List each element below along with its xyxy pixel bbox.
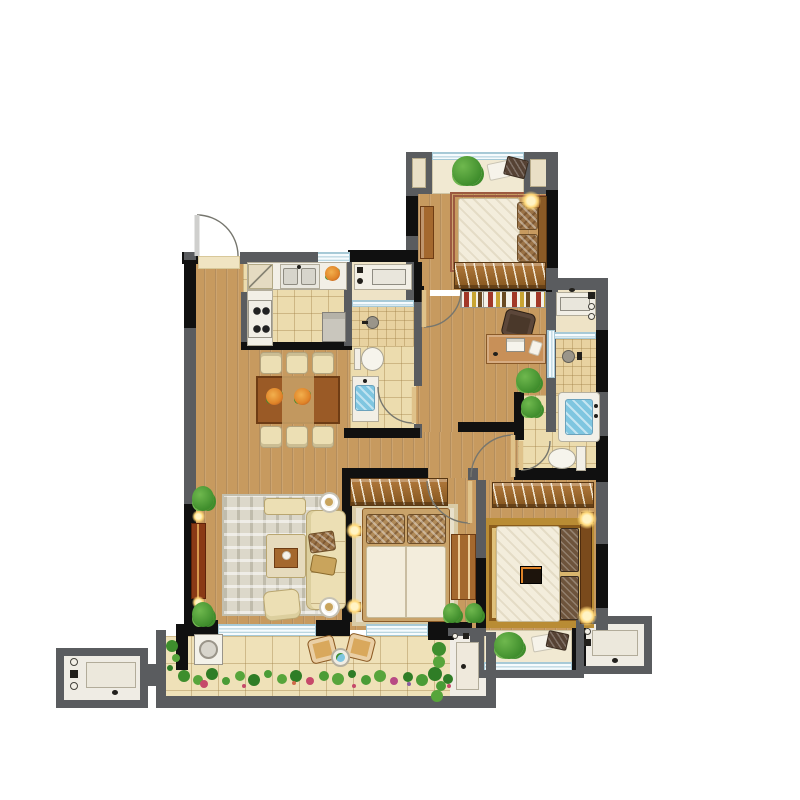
wall-segment xyxy=(546,190,558,268)
tray-dish xyxy=(282,551,291,560)
flower-bed-hedge xyxy=(178,670,190,682)
wall-segment xyxy=(414,262,422,302)
platform-fixture xyxy=(584,639,591,646)
wall-segment xyxy=(56,648,148,656)
plant xyxy=(192,486,214,511)
floor-plan xyxy=(0,0,800,800)
plant xyxy=(465,603,483,623)
shower-arm-icon xyxy=(362,321,368,324)
plant xyxy=(443,603,461,623)
shower-head-icon xyxy=(562,350,575,363)
armchair xyxy=(263,588,302,622)
plant xyxy=(452,156,482,186)
bed-tray xyxy=(520,566,542,584)
toilet-tank xyxy=(576,446,586,471)
kitchen-sink-basin xyxy=(301,268,316,285)
plant-cluster xyxy=(166,640,178,652)
tv-cabinet xyxy=(191,523,206,599)
kitchen-appliance xyxy=(322,312,346,342)
wall-segment xyxy=(514,468,604,480)
masterbath-fixture xyxy=(588,313,595,320)
pillow xyxy=(560,528,579,572)
wardrobe xyxy=(454,262,546,289)
wall-segment xyxy=(140,648,148,708)
pillow xyxy=(366,514,405,544)
wall-segment xyxy=(596,330,608,392)
bathroom-1-glass xyxy=(352,300,414,307)
bed-duvet xyxy=(458,198,520,266)
side-table-dish xyxy=(325,603,333,611)
flower-accents xyxy=(200,680,208,688)
stove-4-burner xyxy=(248,300,272,338)
wall-segment xyxy=(56,700,148,708)
plant xyxy=(521,396,542,418)
desk-item xyxy=(493,352,498,356)
platform-drain xyxy=(612,658,618,663)
side-table-dish xyxy=(325,498,333,506)
bathtub-water xyxy=(565,399,593,435)
shower-handle-icon xyxy=(577,352,582,360)
bath1-basin xyxy=(355,385,375,411)
wall-segment xyxy=(348,250,418,262)
dining-chair xyxy=(286,352,308,374)
laptop xyxy=(506,338,525,352)
masterbath-fixture xyxy=(588,292,595,299)
plant xyxy=(516,368,541,393)
wardrobe xyxy=(350,478,448,506)
dining-chair xyxy=(260,426,282,448)
bath1-vanity-sink xyxy=(372,269,406,285)
wall-segment xyxy=(184,260,196,328)
wall-pier-inset xyxy=(412,158,426,188)
entry-cabinet xyxy=(248,264,273,289)
dining-chair xyxy=(260,352,282,374)
bedroom-middle-window xyxy=(366,624,428,636)
bed-duvet xyxy=(366,546,446,618)
platform-counter xyxy=(86,662,136,688)
washer-drum xyxy=(199,640,218,659)
wall-segment xyxy=(156,696,496,708)
floor-masterbath-shower xyxy=(554,339,596,395)
wall-segment xyxy=(148,664,158,686)
lamp-glow xyxy=(521,191,541,211)
dining-chair xyxy=(286,426,308,448)
bath1-fixture xyxy=(357,267,363,273)
masterbath-vanity-sink xyxy=(560,297,590,311)
wardrobe xyxy=(492,482,594,508)
lamp-glow xyxy=(346,522,363,539)
side-cabinet xyxy=(420,206,434,259)
toilet-bowl xyxy=(548,448,576,469)
entry-door-arc[interactable] xyxy=(197,215,238,256)
platform-fixture xyxy=(70,658,78,666)
masterbath-faucet xyxy=(569,288,575,292)
sofa-pillow xyxy=(308,530,337,553)
utility-fixture xyxy=(452,633,458,639)
platform-counter xyxy=(592,630,638,656)
toilet-tank xyxy=(354,348,361,370)
wall-segment xyxy=(406,196,418,236)
platform-drain xyxy=(112,690,118,695)
platform-fixture xyxy=(70,670,78,678)
table-flowers xyxy=(294,388,311,405)
lamp-glow xyxy=(346,598,363,615)
utility-fixture xyxy=(463,633,469,639)
utility-counter xyxy=(456,642,479,690)
dining-chair xyxy=(312,352,334,374)
kitchen-faucet xyxy=(297,265,301,269)
entry-mat xyxy=(198,256,240,269)
kitchen-flower-pot xyxy=(325,266,340,281)
wall-segment xyxy=(56,648,64,708)
wall-segment xyxy=(596,544,608,608)
bookshelf xyxy=(460,291,546,308)
plant xyxy=(192,602,214,627)
balcony-table-bowl xyxy=(336,653,345,662)
wall-segment xyxy=(468,468,478,480)
lamp-glow xyxy=(577,509,597,529)
tub-knob xyxy=(594,414,598,418)
wall-segment xyxy=(644,616,652,674)
bath1-faucet xyxy=(363,379,367,383)
utility-faucet xyxy=(461,664,466,669)
pillow xyxy=(517,234,538,262)
master-bath-glass xyxy=(554,332,596,339)
dining-chair xyxy=(312,426,334,448)
platform-fixture xyxy=(584,628,591,635)
wall-segment xyxy=(576,666,652,674)
wall-segment xyxy=(596,436,608,482)
platform-fixture xyxy=(70,682,78,690)
floor-bath1-shower xyxy=(350,302,416,346)
bench xyxy=(264,498,306,515)
bath1-fixture xyxy=(357,278,363,284)
dresser xyxy=(451,534,476,600)
table-flowers xyxy=(266,388,283,405)
wall-segment xyxy=(316,620,350,636)
kitchen-sink-basin xyxy=(283,268,298,285)
toilet-bowl xyxy=(361,347,384,371)
lamp-glow xyxy=(577,606,597,626)
wall-segment xyxy=(344,428,420,438)
plant-cluster xyxy=(432,642,446,656)
sconce-glow xyxy=(192,510,205,523)
plant xyxy=(494,632,524,659)
balcony-sliding-door[interactable] xyxy=(218,624,316,636)
wall-segment xyxy=(458,422,520,432)
masterbath-fixture xyxy=(588,303,595,310)
wall-segment xyxy=(546,278,608,290)
tub-knob xyxy=(594,404,598,408)
pillow xyxy=(407,514,446,544)
